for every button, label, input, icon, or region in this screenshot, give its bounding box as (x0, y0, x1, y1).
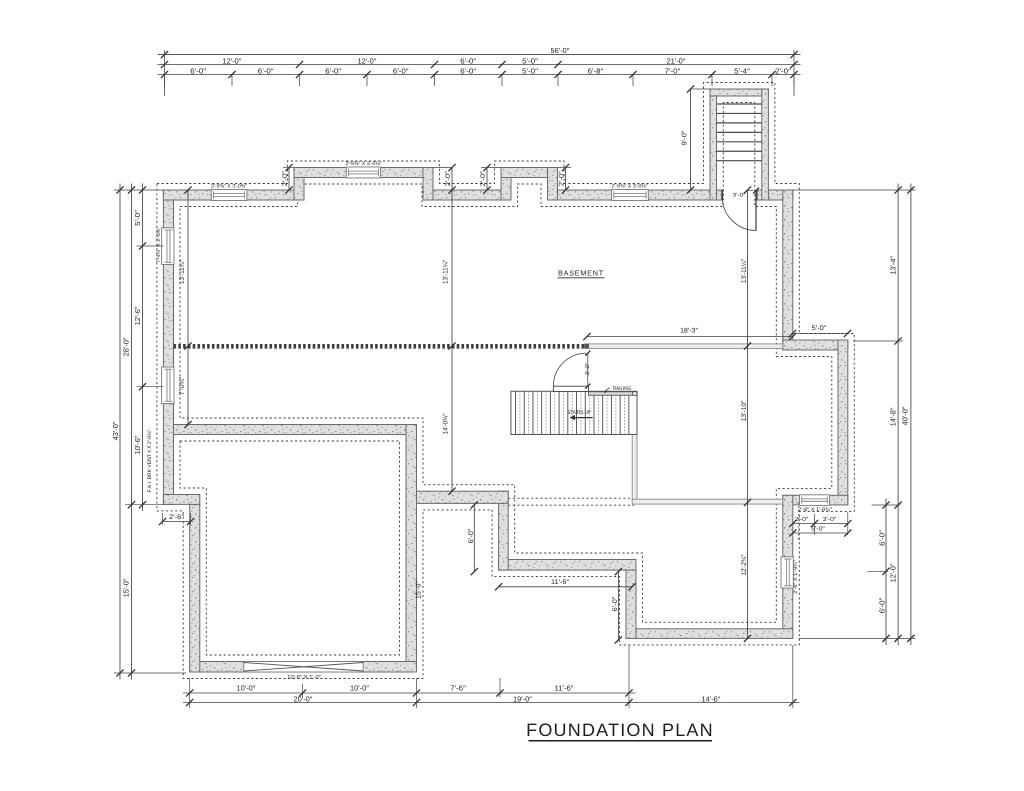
svg-text:2′-0″: 2′-0″ (480, 171, 487, 187)
svg-text:3′-0″: 3′-0″ (823, 516, 837, 523)
svg-text:2′-0″: 2′-0″ (775, 66, 791, 75)
svg-text:14′-6″: 14′-6″ (702, 694, 721, 703)
svg-text:12′-2¾″: 12′-2¾″ (741, 554, 748, 576)
svg-text:3′-0″: 3′-0″ (733, 192, 746, 198)
svg-text:RAILING: RAILING (613, 386, 631, 392)
svg-text:2′-0″: 2′-0″ (795, 516, 809, 523)
svg-text:15′-0″: 15′-0″ (416, 580, 423, 599)
svg-text:28′-0″: 28′-0″ (122, 337, 131, 356)
svg-text:9′-0″: 9′-0″ (682, 130, 689, 146)
svg-text:10′-6″ X 1′-0″: 10′-6″ X 1′-0″ (287, 675, 321, 681)
svg-text:21′-0″: 21′-0″ (667, 56, 686, 65)
svg-text:2′-8″ X 1′-9¾″: 2′-8″ X 1′-9¾″ (798, 507, 832, 513)
svg-text:20′-0″: 20′-0″ (294, 694, 313, 703)
svg-text:12′-6″: 12′-6″ (133, 306, 142, 325)
svg-text:7′-0″: 7′-0″ (665, 66, 681, 75)
svg-text:STAIRS UP: STAIRS UP (567, 410, 591, 416)
svg-text:5′-4″: 5′-4″ (734, 66, 750, 75)
svg-text:6′-0″: 6′-0″ (460, 56, 476, 65)
svg-text:7′-0¾″: 7′-0¾″ (179, 376, 186, 395)
svg-text:6′-0″: 6′-0″ (468, 528, 475, 544)
svg-text:12′-0″: 12′-0″ (358, 56, 377, 65)
svg-text:6′-0″: 6′-0″ (325, 66, 341, 75)
svg-text:2′-9⅜″ X 3′-0⅜″: 2′-9⅜″ X 3′-0⅜″ (346, 161, 382, 167)
svg-text:2′-8″ X 1′-9¾″: 2′-8″ X 1′-9¾″ (793, 560, 799, 594)
svg-text:2′-0″: 2′-0″ (558, 171, 565, 187)
svg-text:13′-4″: 13′-4″ (889, 256, 898, 275)
svg-text:12′-0″: 12′-0″ (223, 56, 242, 65)
svg-text:5′-0″: 5′-0″ (522, 56, 538, 65)
svg-text:7′-4⅞″ X 2′-0⅜″: 7′-4⅞″ X 2′-0⅜″ (156, 227, 162, 263)
svg-text:6′-0″: 6′-0″ (878, 530, 887, 546)
svg-text:6′-0″: 6′-0″ (190, 66, 206, 75)
svg-text:2′-9⅜″ X 3′-0⅜″: 2′-9⅜″ X 3′-0⅜″ (612, 184, 648, 190)
svg-text:2′-0″: 2′-0″ (445, 171, 452, 187)
svg-text:43′-0″: 43′-0″ (111, 421, 120, 440)
svg-text:14′-0¾″: 14′-0¾″ (443, 413, 450, 435)
svg-text:14′-8″: 14′-8″ (889, 407, 898, 426)
svg-text:6′-0″: 6′-0″ (878, 597, 887, 613)
svg-text:2′-9⅜″ X 3′-0⅜″: 2′-9⅜″ X 3′-0⅜″ (211, 184, 247, 190)
svg-text:10′-0″: 10′-0″ (237, 684, 256, 693)
svg-text:2′-0″: 2′-0″ (282, 171, 289, 187)
svg-text:12′-0″: 12′-0″ (889, 563, 898, 582)
svg-text:13′-10″: 13′-10″ (741, 400, 748, 422)
svg-text:5′-0″: 5′-0″ (811, 526, 825, 533)
svg-text:6′-8″: 6′-8″ (588, 66, 604, 75)
svg-text:6′-0″: 6′-0″ (612, 596, 619, 612)
svg-text:F.A.I. BRK VENT 4 X 2′-0⅜″: F.A.I. BRK VENT 4 X 2′-0⅜″ (147, 430, 153, 493)
svg-text:5′-0″: 5′-0″ (133, 210, 142, 226)
svg-text:11′-6″: 11′-6″ (551, 579, 570, 586)
svg-text:13′-11¼″: 13′-11¼″ (741, 258, 748, 283)
svg-text:15′-0″: 15′-0″ (122, 578, 131, 597)
svg-text:2′-6″: 2′-6″ (169, 514, 185, 521)
svg-text:6′-0″: 6′-0″ (460, 66, 476, 75)
svg-text:11′-6″: 11′-6″ (555, 684, 574, 693)
svg-text:18′-3″: 18′-3″ (680, 328, 699, 335)
svg-text:6′-0″: 6′-0″ (258, 66, 274, 75)
svg-text:10′-0″: 10′-0″ (350, 684, 369, 693)
svg-text:56′-0″: 56′-0″ (551, 46, 570, 55)
svg-text:5′-0″: 5′-0″ (812, 325, 828, 332)
svg-text:40′-0″: 40′-0″ (901, 406, 910, 425)
svg-text:19′-0″: 19′-0″ (513, 694, 532, 703)
svg-text:5′-0″: 5′-0″ (522, 66, 538, 75)
svg-text:6′-0″: 6′-0″ (393, 66, 409, 75)
svg-text:13′-11¼″: 13′-11¼″ (179, 259, 186, 284)
svg-text:7′-6″: 7′-6″ (450, 684, 466, 693)
svg-text:10′-6″: 10′-6″ (133, 435, 142, 454)
svg-text:3′-0″: 3′-0″ (585, 362, 591, 375)
svg-text:FOUNDATION PLAN: FOUNDATION PLAN (526, 720, 714, 740)
svg-text:13′-11¼″: 13′-11¼″ (443, 259, 450, 284)
svg-text:BASEMENT: BASEMENT (558, 269, 604, 278)
